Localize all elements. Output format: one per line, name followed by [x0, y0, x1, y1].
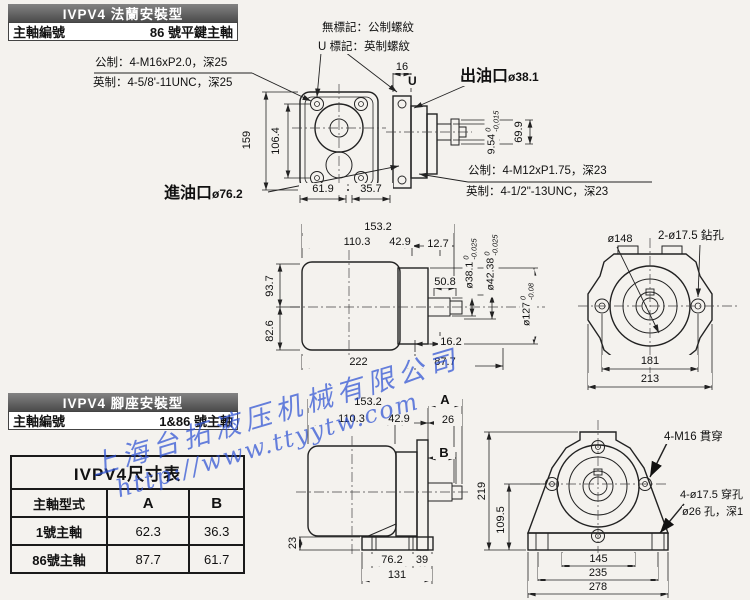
- note-inch-front: 英制：4-5/8'-11UNC，深25: [93, 77, 232, 90]
- flange-shaft-value: 86 號平鍵主軸: [150, 22, 233, 41]
- dim-B: B: [433, 447, 455, 459]
- note-inch-rear: 英制：4-1/2"-13UNC，深23: [466, 186, 608, 199]
- col-b: B: [189, 489, 244, 517]
- tolerance-9-54: 0-0.015: [485, 111, 500, 132]
- dim-106-4: 106.4: [270, 121, 282, 161]
- dim-26: 26: [434, 414, 462, 426]
- foot-section-title: IVPV4 腳座安裝型: [8, 393, 238, 411]
- foot-front-view: [528, 420, 668, 560]
- table-row-shaft-1: 1號主軸 62.3 36.3: [11, 517, 244, 545]
- outlet-diameter: ø38.1: [508, 70, 539, 84]
- tolerance-d38: 0-0.025: [463, 238, 478, 259]
- dim-219: 219: [476, 471, 488, 511]
- size-table: IVPV4尺寸表 主軸型式 A B 1號主軸 62.3 36.3 86號主軸 8…: [10, 455, 245, 574]
- dim-42-9-mid: 42.9: [386, 236, 414, 248]
- dim-A: A: [428, 394, 462, 406]
- dim-153-2-foot: 153.2: [308, 396, 428, 408]
- note-drill-holes: 2-ø17.5 鉆孔: [658, 230, 724, 243]
- col-shaft-type: 主軸型式: [11, 489, 107, 517]
- flange-side-view: [386, 96, 472, 188]
- tolerance-d127: 0-0.08: [520, 283, 535, 300]
- shaft-1-a: 62.3: [107, 517, 189, 545]
- outlet-label: 出油口: [460, 62, 508, 86]
- foot-shaft-label: 主軸編號: [13, 411, 65, 430]
- shaft-86-b: 61.7: [189, 545, 244, 573]
- dim-d148: ø148: [598, 233, 642, 245]
- flange-shaft-label: 主軸編號: [13, 22, 65, 41]
- dim-16: 16: [392, 61, 412, 73]
- dim-159: 159: [241, 120, 253, 160]
- u-mark-glyph: U: [408, 75, 417, 88]
- tolerance-d42: 0-0.025: [484, 235, 499, 256]
- note-m16-through: 4-M16 貫穿: [664, 431, 723, 444]
- dim-42-9-foot: 42.9: [384, 413, 414, 425]
- dim-181: 181: [602, 355, 698, 367]
- dim-12-7: 12.7: [424, 238, 452, 250]
- size-table-title: IVPV4尺寸表: [11, 456, 244, 489]
- dim-50-8: 50.8: [432, 276, 458, 288]
- dim-222: 222: [302, 356, 415, 368]
- shaft-1-label: 1號主軸: [11, 517, 107, 545]
- dim-93-7: 93.7: [264, 266, 276, 306]
- note-metric-front: 公制：4-M16xP2.0，深25: [95, 57, 227, 70]
- dim-d38-1: ø38.1 0-0.025: [463, 229, 478, 299]
- flange-shaft-row: 主軸編號 86 號平鍵主軸: [8, 22, 238, 41]
- dim-9-54: 9.54 0-0.015: [485, 103, 500, 163]
- dim-61-9: 61.9: [299, 183, 347, 195]
- dim-d42-38: ø42.38 0-0.025: [484, 228, 499, 298]
- shaft-1-b: 36.3: [189, 517, 244, 545]
- dim-235: 235: [538, 567, 658, 579]
- dim-16-2: 16.2: [438, 336, 464, 348]
- dim-35-7: 35.7: [349, 183, 393, 195]
- note-no-mark: 無標記：公制螺紋: [322, 22, 414, 35]
- dim-278: 278: [528, 581, 668, 593]
- dim-d127: ø127 0-0.08: [520, 270, 535, 340]
- mid-side-view: [290, 250, 545, 364]
- note-metric-rear: 公制：4-M12xP1.75，深23: [468, 165, 607, 178]
- foot-shaft-value: 1&86 號主軸: [159, 411, 233, 430]
- foot-shaft-row: 主軸編號 1&86 號主軸: [8, 411, 238, 430]
- note-d17-through: 4-ø17.5 穿孔: [680, 489, 743, 502]
- shaft-86-label: 86號主軸: [11, 545, 107, 573]
- dim-39: 39: [408, 554, 436, 566]
- col-a: A: [107, 489, 189, 517]
- dim-82-6: 82.6: [264, 311, 276, 351]
- dim-109-5: 109.5: [495, 498, 507, 542]
- inlet-port-label: 進油口 ø76.2: [164, 179, 243, 203]
- inlet-diameter: ø76.2: [212, 187, 243, 201]
- note-u-mark: U 標記：英制螺紋: [318, 41, 410, 54]
- dim-87-7: 87.7: [415, 356, 475, 368]
- flange-section-title: IVPV4 法蘭安裝型: [8, 4, 238, 22]
- dim-213: 213: [588, 373, 712, 385]
- dim-153-2-mid: 153.2: [302, 221, 454, 233]
- dim-69-9: 69.9: [513, 112, 525, 152]
- table-row-shaft-86: 86號主軸 87.7 61.7: [11, 545, 244, 573]
- outlet-port-label: 出油口 ø38.1: [460, 62, 539, 86]
- dim-110-3-foot: 110.3: [308, 413, 395, 425]
- dim-145: 145: [562, 553, 635, 565]
- dim-131: 131: [362, 569, 432, 581]
- shaft-86-a: 87.7: [107, 545, 189, 573]
- dim-23: 23: [287, 528, 299, 558]
- inlet-label: 進油口: [164, 179, 212, 203]
- size-table-header-row: 主軸型式 A B: [11, 489, 244, 517]
- note-d26-hole: ø26 孔，深1: [682, 506, 743, 519]
